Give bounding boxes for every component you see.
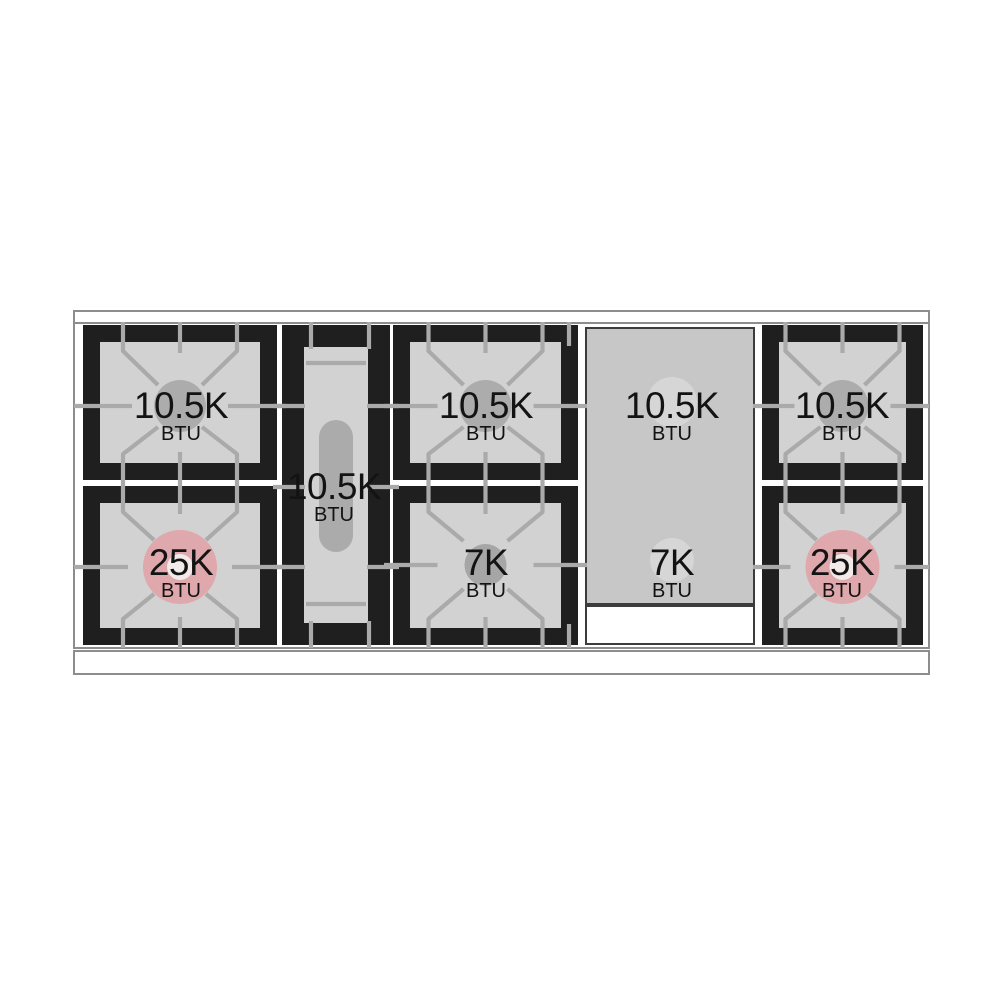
btu-unit: BTU (742, 425, 942, 444)
burner-label-middle-front: 7K BTU (386, 544, 586, 601)
btu-value: 25K (742, 544, 942, 582)
rangetop-burner-diagram: 10.5K BTU 25K BTU 10.5K BTU 10.5K BTU 7K… (0, 0, 1000, 1000)
btu-value: 10.5K (234, 468, 434, 506)
btu-unit: BTU (81, 582, 281, 601)
btu-unit: BTU (81, 425, 281, 444)
burner-label-middle-rear: 10.5K BTU (386, 387, 586, 444)
btu-value: 10.5K (742, 387, 942, 425)
back-trim-line (73, 322, 930, 324)
btu-value: 25K (81, 544, 281, 582)
burner-label-right-rear: 10.5K BTU (742, 387, 942, 444)
btu-unit: BTU (386, 582, 586, 601)
btu-value: 10.5K (386, 387, 586, 425)
btu-value: 7K (386, 544, 586, 582)
front-trim-band (73, 647, 930, 652)
burner-label-left-rear: 10.5K BTU (81, 387, 281, 444)
griddle-drip-tray (585, 605, 755, 645)
btu-unit: BTU (234, 506, 434, 525)
burner-label-center-oval: 10.5K BTU (234, 468, 434, 525)
burner-label-left-front: 25K BTU (81, 544, 281, 601)
btu-unit: BTU (386, 425, 586, 444)
btu-value: 10.5K (81, 387, 281, 425)
btu-unit: BTU (742, 582, 942, 601)
burner-label-right-front: 25K BTU (742, 544, 942, 601)
